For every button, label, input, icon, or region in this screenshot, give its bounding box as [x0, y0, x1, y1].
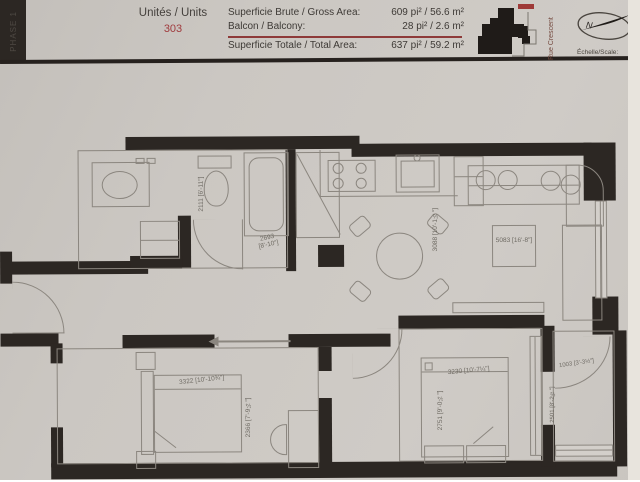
bed2-pillow: [424, 445, 464, 463]
counter-edge: [320, 195, 458, 197]
bedroom2-door-swing: [352, 329, 402, 379]
wall-segment: [0, 252, 12, 284]
nightstand: [136, 451, 156, 469]
wall-segment: [122, 335, 214, 348]
sofa-cushion: [498, 170, 518, 190]
dining-chair: [347, 214, 372, 238]
floorplan-page: PHASE 1 Unités / Units 303 Superficie Br…: [0, 0, 640, 480]
sink-basin: [102, 171, 138, 199]
hall-closet-shelf: [141, 240, 179, 241]
dining-table: [376, 232, 423, 279]
wall-segment: [319, 347, 332, 371]
dimension-balcony-depth: 2501 [8'-2½"]: [550, 385, 557, 425]
bathtub-inner: [249, 157, 284, 231]
wall-segment: [319, 398, 332, 466]
wall-segment: [398, 315, 544, 329]
dimension-bathroom-depth: 2111 [6'-11"]: [198, 169, 206, 221]
burner: [356, 178, 367, 189]
sofa-cushion: [476, 170, 496, 190]
dimension-living-width: 5083 [16'-8"]: [494, 237, 534, 245]
dimension-bedroom2-depth: 2751 [9'-0¼"]: [437, 389, 445, 431]
kitchen-faucet: [414, 154, 421, 161]
nightstand: [136, 352, 156, 370]
page-edge: [628, 0, 640, 480]
bed2-corner-marker: [425, 362, 433, 370]
wall-segment: [318, 245, 344, 267]
faucet-marks: [136, 158, 145, 164]
burner: [356, 163, 367, 174]
toilet-bowl: [204, 170, 229, 206]
dining-chair: [348, 279, 373, 303]
entry-door-swing: [12, 281, 64, 333]
coffee-table: [492, 225, 536, 267]
bed2-pillow: [466, 445, 506, 463]
floorplan-drawing: 2111 [6'-11"] 2693 [8'-10"] 3088 [10'-1½…: [0, 0, 640, 482]
sofa-cushion: [541, 171, 561, 191]
tv-console: [452, 302, 544, 313]
kitchen-sink-basin: [401, 160, 435, 187]
sofa-cushion: [561, 175, 581, 195]
burner: [333, 178, 344, 189]
desk: [288, 410, 319, 468]
dining-chair: [426, 277, 451, 301]
sliding-door-arrow-icon: [209, 337, 219, 347]
bed1-headboard: [141, 371, 154, 455]
burner: [333, 163, 344, 174]
wall-segment: [125, 136, 359, 150]
dimension-kitchen-depth: 3088 [10'-1½"]: [432, 201, 440, 257]
toilet-tank: [198, 155, 232, 168]
faucet-marks: [147, 158, 156, 164]
wall-segment: [351, 143, 591, 157]
sofa-right-section: [562, 225, 603, 321]
dimension-bedroom1-depth: 2366 [7'-9¼"]: [245, 396, 253, 438]
bedroom1-sliding-door-line: [219, 340, 291, 342]
